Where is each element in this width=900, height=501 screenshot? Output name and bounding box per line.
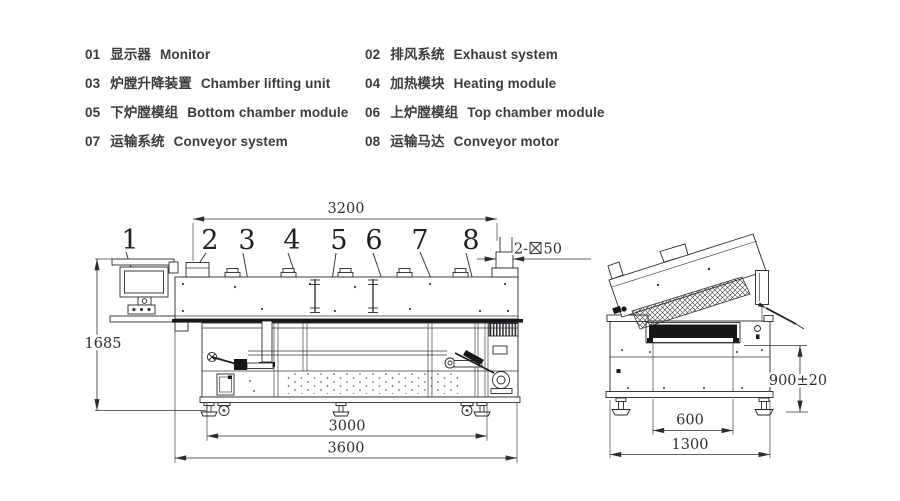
side-feet [201, 403, 490, 416]
duct-qty-label: 2- [514, 242, 528, 258]
dim-3200-label: 3200 [328, 201, 365, 217]
callout-1: 1 [121, 225, 138, 256]
base-frame [200, 397, 520, 403]
vent-caps [225, 269, 468, 278]
latch-pin [756, 335, 760, 340]
callout-7: 7 [411, 225, 428, 256]
callout-8: 8 [462, 225, 479, 256]
exhaust-inlet-duct [186, 263, 209, 278]
callout-4: 4 [283, 225, 300, 256]
caster-wheel [218, 403, 230, 416]
dim-600: 600 [653, 399, 733, 435]
dim-1300: 1300 [610, 400, 770, 459]
caster-wheel [461, 403, 473, 416]
perforation-panel [285, 373, 460, 394]
dim-1300-label: 1300 [672, 437, 709, 453]
dim-3000-label: 3000 [329, 419, 366, 435]
leveling-foot [333, 403, 349, 416]
leveling-foot [612, 398, 630, 415]
callout-numbers: 1 2 3 4 5 6 7 8 [121, 225, 479, 256]
electrical-box [217, 374, 234, 395]
machine-drawing: 1 2 3 4 5 6 7 8 [0, 0, 900, 501]
conveyor-rail-band [172, 319, 523, 323]
technical-drawing-page: 01 显示器 Monitor 02 排风系统 Exhaust system 03… [0, 0, 900, 501]
duct-dimension: 2- 50 [477, 242, 591, 260]
side-view: 1 2 3 4 5 6 7 8 [85, 201, 591, 463]
dim-3000: 3000 [207, 403, 487, 441]
square-symbol-icon [530, 243, 541, 254]
leveling-foot [201, 403, 217, 416]
callout-3: 3 [238, 225, 255, 256]
callout-2: 2 [201, 225, 218, 256]
exhaust-grille [489, 324, 518, 337]
oven-chamber [172, 277, 523, 323]
hinge-assembly [756, 271, 805, 330]
leveling-foot [474, 403, 490, 416]
lower-cabinet [202, 321, 518, 397]
callout-6: 6 [365, 225, 382, 256]
end-view: 900±20 600 1300 [606, 234, 827, 459]
dim-900-label: 900±20 [769, 373, 827, 389]
dim-3600-label: 3600 [328, 441, 365, 457]
duct-size-label: 50 [544, 242, 562, 258]
dim-600-label: 600 [676, 413, 704, 429]
dim-1685-label: 1685 [85, 336, 122, 352]
callout-5: 5 [330, 225, 347, 256]
